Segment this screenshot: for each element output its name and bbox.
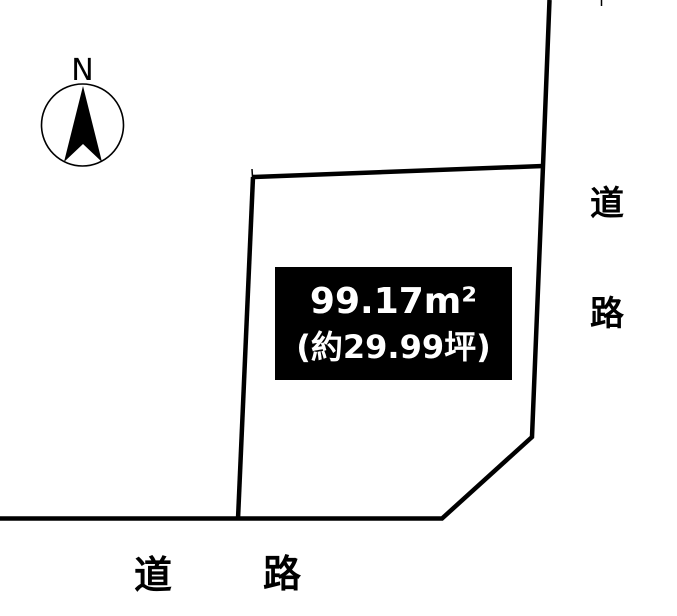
road-label-right-char1: 道 xyxy=(590,187,624,221)
area-tsubo: (約29.99坪) xyxy=(296,325,490,369)
plot-left-edge xyxy=(238,177,253,519)
plot-top-edge xyxy=(253,166,543,177)
road-label-right-char2: 路 xyxy=(590,297,624,331)
road-label-bottom-char1: 道 xyxy=(134,556,172,594)
area-label-box: 99.17m² (約29.99坪) xyxy=(275,267,512,380)
land-plot-diagram: N 99.17m² (約29.99坪) 道 路 道 路 xyxy=(0,0,677,616)
north-label: N xyxy=(71,53,93,88)
area-square-meters: 99.17m² xyxy=(310,279,477,325)
north-arrow-icon xyxy=(64,86,102,162)
road-label-bottom-char2: 路 xyxy=(263,555,301,593)
compass-icon: N xyxy=(42,53,124,166)
boundary-tick-corner xyxy=(252,169,253,177)
